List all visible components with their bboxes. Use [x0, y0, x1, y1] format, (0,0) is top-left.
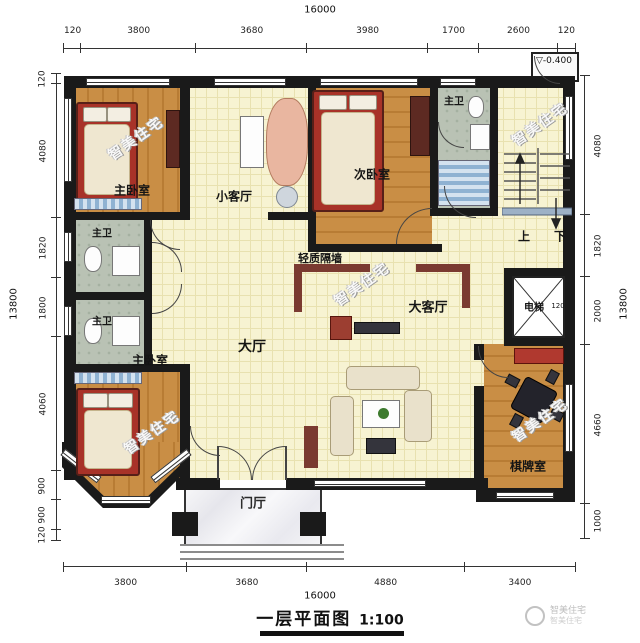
level-symbol-icon: ▽: [536, 56, 543, 66]
window: [64, 232, 72, 262]
window: [64, 306, 72, 336]
dim-top-3: 3980: [356, 26, 379, 36]
wall: [176, 478, 220, 490]
wall: [430, 86, 438, 216]
label-bath-mid2: 主卫: [92, 313, 112, 328]
elevator-wall: [504, 268, 566, 276]
step: [180, 544, 344, 546]
dim-bottom-3: 3400: [508, 578, 531, 588]
window: [314, 480, 426, 487]
dim-right-2: 2000: [593, 300, 603, 323]
side-table: [276, 186, 298, 208]
label-elevator-width: 120: [551, 302, 564, 310]
drawing-title: 一层平面图 1:100: [256, 605, 404, 630]
dim-top-4: 1700: [442, 26, 465, 36]
label-bath-mid1: 主卫: [92, 225, 112, 240]
dim-strip-top: 120 3800 3680 3980 1700 2600 120: [64, 24, 575, 49]
rug: [330, 316, 352, 340]
logo-line1: 智美住宅: [550, 606, 586, 616]
floor-plan-canvas: 16000 120 3800 3680 3980 1700 2600 120 3…: [0, 0, 640, 643]
label-main-hall: 大厅: [238, 336, 266, 356]
shower-tray: [112, 246, 140, 276]
tv-cabinet: [166, 110, 180, 168]
tv-stand: [354, 322, 400, 334]
door-leaf: [285, 446, 287, 480]
step: [180, 558, 344, 560]
sofa: [346, 366, 420, 390]
label-stairs-down: 下: [554, 228, 566, 245]
brand-logo: 智美住宅 智美住宅: [525, 606, 586, 626]
dim-top-2: 3680: [240, 26, 263, 36]
wall: [490, 86, 498, 216]
label-mahjong-room: 棋牌室: [510, 458, 546, 475]
dim-right-total: 13800: [619, 288, 630, 320]
partition-wall: [304, 426, 318, 468]
wall: [64, 364, 190, 372]
label-stairs-up: 上: [518, 228, 530, 245]
label-foyer: 门厅: [240, 493, 266, 512]
armchair: [266, 98, 308, 186]
dim-top-total: 16000: [304, 5, 336, 16]
label-elevator: 电梯: [524, 299, 544, 314]
dim-strip-left: 120 4080 1820 1800 4060 900 900 120: [30, 74, 57, 540]
level-value: -0.400: [543, 56, 572, 66]
partition-wall: [462, 264, 470, 308]
dim-top-1: 3800: [127, 26, 150, 36]
bench: [74, 198, 142, 210]
shower-tray: [112, 316, 140, 346]
dim-right-3: 4660: [593, 413, 603, 436]
dim-left-6: 900: [38, 507, 48, 524]
window: [440, 78, 476, 86]
title-scale: 1:100: [359, 613, 404, 629]
dim-left-5: 900: [38, 477, 48, 494]
dim-top-5: 2600: [507, 26, 530, 36]
wardrobe: [410, 96, 430, 156]
logo-circle-icon: [525, 606, 545, 626]
window: [86, 78, 170, 86]
dim-left-7: 120: [38, 526, 48, 543]
window: [214, 78, 286, 86]
dim-right-0: 4080: [593, 134, 603, 157]
bench-sofa: [514, 348, 564, 364]
wall: [64, 212, 190, 220]
sink: [470, 124, 490, 150]
bed: [312, 90, 384, 212]
dim-top-6: 120: [558, 26, 575, 36]
dim-bottom-0: 3800: [114, 578, 137, 588]
toilet: [468, 96, 484, 118]
label-partition-note: 轻质隔墙: [298, 250, 342, 266]
column: [172, 512, 198, 536]
bay-window: [101, 496, 151, 504]
dim-bottom-total: 16000: [304, 591, 336, 602]
dim-left-total: 13800: [9, 288, 20, 320]
label-large-living: 大客厅: [408, 297, 447, 316]
window: [565, 384, 573, 452]
wall: [474, 386, 484, 490]
window: [64, 98, 72, 182]
dim-strip-right: 4080 1820 2000 4660 1000: [584, 76, 611, 538]
dim-top-0: 120: [64, 26, 81, 36]
toilet: [84, 246, 102, 272]
dim-right-4: 1000: [593, 510, 603, 533]
sofa: [404, 390, 432, 442]
dim-bottom-1: 3680: [235, 578, 258, 588]
desk: [240, 116, 264, 168]
step: [180, 551, 344, 553]
dim-bottom-2: 4880: [374, 578, 397, 588]
dim-strip-bottom: 3800 3680 4880 3400: [64, 566, 575, 589]
elevator-wall: [504, 268, 512, 346]
label-master-bedroom-top: 主卧室: [114, 182, 150, 199]
bed: [76, 388, 140, 476]
column: [300, 512, 326, 536]
armchair: [366, 438, 396, 454]
label-small-living: 小客厅: [216, 188, 252, 205]
sofa: [330, 396, 354, 456]
title-underline: [260, 631, 404, 636]
title-name: 一层平面图: [256, 610, 351, 630]
label-master-bedroom-low: 主卧室: [132, 352, 168, 369]
partition-wall: [294, 264, 302, 312]
wall: [268, 212, 308, 220]
dim-left-4: 4060: [38, 393, 48, 416]
dim-left-3: 1800: [38, 296, 48, 319]
dim-left-1: 4080: [38, 140, 48, 163]
label-bath-top: 主卫: [444, 93, 464, 108]
plant: [378, 408, 389, 419]
wall: [180, 372, 190, 480]
wall: [180, 86, 190, 216]
label-second-bedroom: 次卧室: [354, 166, 390, 183]
window: [496, 492, 554, 499]
wall: [64, 292, 152, 300]
window: [320, 78, 418, 86]
level-marker: ▽-0.400: [536, 56, 572, 66]
dim-right-1: 1820: [593, 235, 603, 258]
bench: [74, 372, 142, 384]
dim-left-2: 1820: [38, 237, 48, 260]
logo-line2: 智美住宅: [550, 616, 586, 626]
